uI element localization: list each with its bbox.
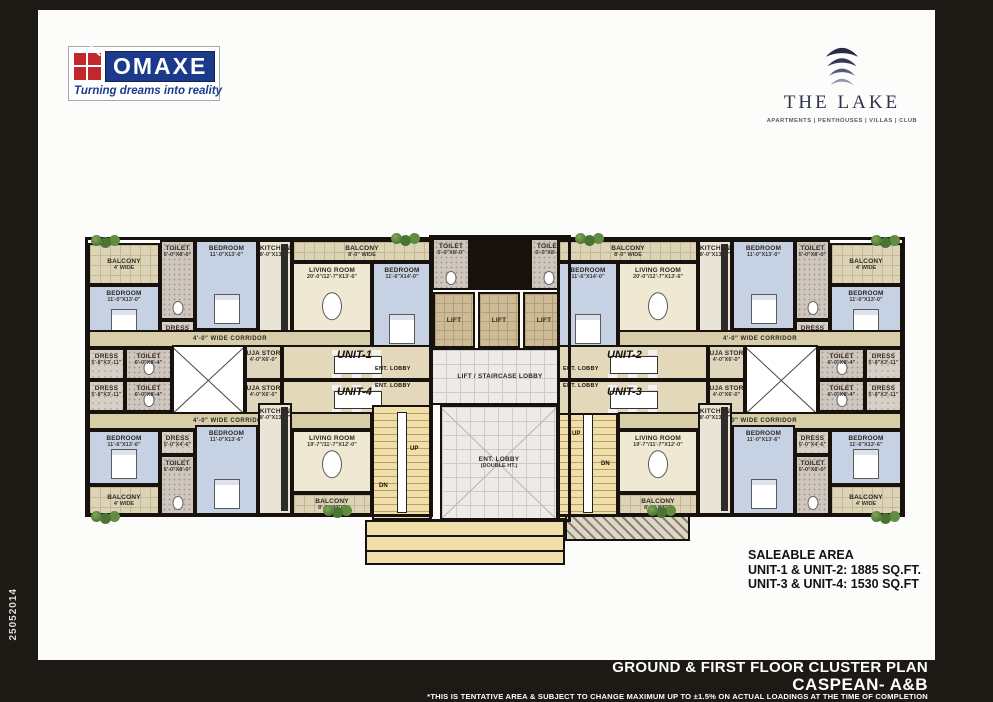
lake-building-icon: [820, 43, 864, 91]
saleable-area-note: SALEABLE AREA UNIT-1 & UNIT-2: 1885 SQ.F…: [748, 548, 921, 592]
stair-dn-left: DN: [379, 483, 388, 489]
dress-mid-left-b: DRESS5'-8"X3'-11": [88, 380, 125, 412]
living-room-u2-dimension: 20'-0"/12'-7"X13'-6": [633, 274, 683, 280]
toilet-mid-left-a-label: TOILET: [136, 353, 160, 360]
toilet-mid-left-a: TOILET6'-0"X8'-4": [125, 348, 172, 380]
page-frame: 25052014 OMAXE Turning dreams into reali…: [0, 0, 993, 702]
dress-mid-left-b-dimension: 5'-8"X3'-11": [91, 392, 121, 398]
puja-store-u1-label: PUJA STORE: [245, 350, 282, 357]
kitchen-u3-dimension: 8'-0"X13'-0": [700, 415, 730, 421]
the-lake-logo: THE LAKE APARTMENTS | PENTHOUSES | VILLA…: [764, 43, 920, 124]
puja-store-u1: PUJA STORE4'-0"X6'-0": [245, 345, 282, 380]
corridor-u3-label: 4'-0" WIDE CORRIDOR: [723, 418, 797, 425]
planter-6: [323, 505, 334, 516]
kitchen-u3: KITCHEN8'-0"X13'-0": [698, 403, 732, 515]
balcony-top-right-label: BALCONY: [849, 258, 883, 265]
kitchen-u4-label: KITCHEN: [260, 408, 290, 415]
living-room-u3-label: LIVING ROOM: [635, 435, 681, 442]
shaft-right: [745, 345, 818, 415]
toilet-mid-right-a-label: TOILET: [829, 353, 853, 360]
balcony-top-left-label: BALCONY: [107, 258, 141, 265]
bedroom-u2-mid: BEDROOM11'-0"X13'-0": [732, 240, 795, 330]
dress-u3-label: DRESS: [801, 435, 824, 442]
ent-lobby-u4: ENT. LOBBY: [375, 383, 411, 389]
dress-mid-left-a-label: DRESS: [95, 353, 118, 360]
toilet-u1: TOILET5'-0"X8'-0": [160, 240, 195, 320]
bedroom-u2-mid-dimension: 11'-0"X13'-0": [747, 252, 780, 258]
puja-store-u3-label: PUJA STORE: [708, 385, 745, 392]
planter-7: [647, 505, 658, 516]
bedroom-u4-mid: BEDROOM11'-0"X13'-6": [195, 425, 258, 515]
toilet-u1-dimension: 5'-0"X8'-0": [164, 252, 191, 258]
living-room-u3-dimension: 19'-7"/11'-7"X12'-0": [633, 442, 683, 448]
puja-store-u4-label: PUJA STORE: [245, 385, 282, 392]
entrance-steps: [365, 520, 565, 565]
bedroom-u4-mid-label: BEDROOM: [209, 430, 244, 437]
omaxe-wordmark: OMAXE: [105, 51, 215, 82]
bedroom-u3-mid-dimension: 11'-0"X13'-6": [747, 437, 780, 443]
balcony-u2-living-label: BALCONY: [611, 245, 645, 252]
toilet-u4-dimension: 5'-0"X8'-0": [164, 467, 191, 473]
kitchen-u3-label: KITCHEN: [700, 408, 730, 415]
kitchen-u2-label: KITCHEN: [700, 245, 730, 252]
balcony-u1-living-dimension: 8'-0" WIDE: [348, 252, 376, 258]
ent-lobby-u3: ENT. LOBBY: [563, 383, 599, 389]
puja-store-u2-dimension: 4'-0"X6'-0": [713, 357, 740, 363]
ent-lobby-u2: ENT. LOBBY: [563, 366, 599, 372]
bedroom-u2-right-label: BEDROOM: [848, 290, 883, 297]
stair-dn-right: DN: [601, 461, 610, 467]
omaxe-brand-icon: [74, 53, 101, 80]
lake-categories: APARTMENTS | PENTHOUSES | VILLAS | CLUB: [764, 118, 920, 124]
balcony-top-right-dimension: 4' WIDE: [856, 265, 876, 271]
balcony-bottom-left: BALCONY4' WIDE: [88, 485, 160, 515]
entrance-lobby-double-height-label: ENT. LOBBY: [479, 456, 520, 463]
omaxe-logo-row: OMAXE: [74, 51, 214, 82]
balcony-bottom-right: BALCONY4' WIDE: [830, 485, 902, 515]
kitchen-u4-dimension: 8'-0"X13'-0": [260, 415, 290, 421]
dress-mid-left-a: DRESS5'-8"X3'-11": [88, 348, 125, 380]
toilet-mid-left-a-dimension: 6'-0"X8'-4": [135, 360, 162, 366]
bedroom-u1-mid-label: BEDROOM: [209, 245, 244, 252]
toilet-u2: TOILET5'-0"X8'-0": [795, 240, 830, 320]
lift-1: LIFT: [433, 292, 475, 348]
balcony-top-left: BALCONY4' WIDE: [88, 243, 160, 285]
dress-mid-right-b: DRESS5'-8"X3'-11": [865, 380, 902, 412]
living-room-u4-label: LIVING ROOM: [309, 435, 355, 442]
dress-mid-right-a-label: DRESS: [872, 353, 895, 360]
bedroom-u2-mid-label: BEDROOM: [746, 245, 781, 252]
toilet-u2-dimension: 5'-0"X8'-0": [799, 252, 826, 258]
dress-u4-label: DRESS: [166, 435, 189, 442]
center-duct: [470, 238, 530, 290]
dress-mid-right-b-dimension: 5'-8"X3'-11": [868, 392, 898, 398]
dress-mid-left-a-dimension: 5'-8"X3'-11": [91, 360, 121, 366]
living-room-u1-label: LIVING ROOM: [309, 267, 355, 274]
living-room-u1-dimension: 20'-0"/12'-7"X13'-6": [307, 274, 357, 280]
planter-8: [871, 511, 882, 522]
ramp-hatch: [565, 515, 690, 541]
plan-title: GROUND & FIRST FLOOR CLUSTER PLAN: [612, 659, 928, 676]
dress-u4-dimension: 5'-0"X4'-6": [164, 442, 191, 448]
corridor-u1-label: 4'-0" WIDE CORRIDOR: [193, 336, 267, 343]
dress-u3: DRESS5'-0"X4'-6": [795, 430, 830, 455]
balcony-bottom-right-label: BALCONY: [849, 494, 883, 501]
toilet-u3: TOILET5'-0"X8'-0": [795, 455, 830, 515]
bedroom-u2-center-label: BEDROOM: [570, 267, 605, 274]
unit-1-label: UNIT-1: [337, 349, 372, 361]
bedroom-u4-left-dimension: 11'-6"X13'-6": [107, 442, 140, 448]
toilet-u2-label: TOILET: [800, 245, 824, 252]
print-date-code: 25052014: [8, 588, 19, 641]
planter-5: [91, 511, 102, 522]
omaxe-tagline: Turning dreams into reality: [74, 85, 214, 97]
living-room-u3: LIVING ROOM19'-7"/11'-7"X12'-0": [618, 430, 698, 493]
bedroom-u4-left-label: BEDROOM: [106, 435, 141, 442]
corridor-u4-label: 4'-0" WIDE CORRIDOR: [193, 418, 267, 425]
toilet-u4-label: TOILET: [165, 460, 189, 467]
bedroom-u1-mid-dimension: 11'-0"X13'-0": [210, 252, 243, 258]
toilet-u1-label: TOILET: [165, 245, 189, 252]
balcony-u3-living-label: BALCONY: [641, 498, 675, 505]
balcony-u1-living-label: BALCONY: [345, 245, 379, 252]
ent-lobby-u1: ENT. LOBBY: [375, 366, 411, 372]
toilet-mid-right-b: TOILET6'-0"X8'-4": [818, 380, 865, 412]
corridor-u2-label: 4'-0" WIDE CORRIDOR: [723, 336, 797, 343]
kitchen-u4: KITCHEN8'-0"X13'-0": [258, 403, 292, 515]
lift-staircase-lobby: LIFT / STAIRCASE LOBBY: [430, 348, 570, 405]
bedroom-u1-center: BEDROOM11'-6"X14'-0": [372, 262, 432, 350]
toilet-center-left: TOILET5'-0"X8'-0": [432, 238, 470, 290]
saleable-unit-3-4: UNIT-3 & UNIT-4: 1530 SQ.FT: [748, 577, 921, 592]
drawing-sheet: OMAXE Turning dreams into reality THE LA…: [38, 10, 935, 660]
puja-store-u2: PUJA STORE4'-0"X6'-0": [708, 345, 745, 380]
entrance-lobby-double-height: ENT. LOBBY(DOUBLE HT.): [440, 405, 558, 520]
omaxe-icon-slash: [90, 45, 101, 56]
dress-u3-dimension: 5'-0"X4'-6": [799, 442, 826, 448]
bedroom-u4-left: BEDROOM11'-6"X13'-6": [88, 430, 160, 485]
stair-up-left: UP: [410, 446, 418, 452]
toilet-mid-left-b: TOILET6'-0"X8'-4": [125, 380, 172, 412]
lift-3-label: LIFT: [537, 317, 552, 324]
lake-wordmark: THE LAKE: [764, 92, 920, 114]
bedroom-u1-center-label: BEDROOM: [384, 267, 419, 274]
omaxe-logo: OMAXE Turning dreams into reality: [68, 46, 220, 101]
bedroom-u3-mid-label: BEDROOM: [746, 430, 781, 437]
dress-mid-left-b-label: DRESS: [95, 385, 118, 392]
lift-1-label: LIFT: [447, 317, 462, 324]
toilet-mid-right-a-dimension: 6'-0"X8'-4": [828, 360, 855, 366]
balcony-u4-living-label: BALCONY: [315, 498, 349, 505]
bedroom-u3-mid: BEDROOM11'-0"X13'-6": [732, 425, 795, 515]
saleable-title: SALEABLE AREA: [748, 548, 921, 563]
kitchen-u2-dimension: 8'-0"X13'-0": [700, 252, 730, 258]
bedroom-u1-left-dimension: 11'-0"X13'-0": [107, 297, 140, 303]
lift-2: LIFT: [478, 292, 520, 348]
bedroom-u4-mid-dimension: 11'-0"X13'-6": [210, 437, 243, 443]
unit-2-label: UNIT-2: [607, 349, 642, 361]
living-room-u4-dimension: 19'-7"/11'-7"X12'-0": [307, 442, 357, 448]
balcony-u1-living: BALCONY8'-0" WIDE: [292, 240, 432, 262]
toilet-mid-left-b-dimension: 6'-0"X8'-4": [135, 392, 162, 398]
lift-2-label: LIFT: [492, 317, 507, 324]
entrance-lobby-double-height-dimension: (DOUBLE HT.): [481, 463, 518, 469]
bedroom-u1-mid: BEDROOM11'-0"X13'-0": [195, 240, 258, 330]
balcony-u2-living-dimension: 8'-0" WIDE: [614, 252, 642, 258]
planter-1: [91, 235, 102, 246]
toilet-u3-dimension: 5'-0"X8'-0": [799, 467, 826, 473]
balcony-top-left-dimension: 4' WIDE: [114, 265, 134, 271]
toilet-center-left-label: TOILET: [439, 243, 463, 250]
toilet-u3-label: TOILET: [800, 460, 824, 467]
floor-plan: BALCONY4' WIDEBEDROOM11'-0"X13'-0"TOILET…: [85, 233, 905, 568]
toilet-mid-right-a: TOILET6'-0"X8'-4": [818, 348, 865, 380]
dress-mid-right-a-dimension: 5'-8"X3'-11": [868, 360, 898, 366]
bedroom-u1-center-dimension: 11'-6"X14'-0": [385, 274, 418, 280]
plan-disclaimer: *THIS IS TENTATIVE AREA & SUBJECT TO CHA…: [427, 692, 928, 701]
planter-3: [575, 233, 586, 244]
bedroom-u3-right: BEDROOM11'-6"X13'-6": [830, 430, 902, 485]
bedroom-u2-center: BEDROOM11'-6"X14'-0": [558, 262, 618, 350]
stair-up-right: UP: [572, 431, 580, 437]
kitchen-u1-dimension: 8'-0"X13'-0": [260, 252, 290, 258]
shaft-left: [172, 345, 245, 415]
staircase-left: [372, 405, 432, 520]
balcony-bottom-left-label: BALCONY: [107, 494, 141, 501]
toilet-mid-right-b-dimension: 6'-0"X8'-4": [828, 392, 855, 398]
puja-store-u2-label: PUJA STORE: [708, 350, 745, 357]
unit-3-label: UNIT-3: [607, 386, 642, 398]
bedroom-u1-left-label: BEDROOM: [106, 290, 141, 297]
planter-4: [871, 235, 882, 246]
balcony-bottom-right-dimension: 4' WIDE: [856, 501, 876, 507]
lift-staircase-lobby-label: LIFT / STAIRCASE LOBBY: [457, 373, 542, 380]
dress-u4: DRESS5'-0"X4'-6": [160, 430, 195, 455]
balcony-u3-living: BALCONY8'-0" WIDE: [618, 493, 698, 515]
balcony-top-right: BALCONY4' WIDE: [830, 243, 902, 285]
saleable-unit-1-2: UNIT-1 & UNIT-2: 1885 SQ.FT.: [748, 563, 921, 578]
dress-mid-right-a: DRESS5'-8"X3'-11": [865, 348, 902, 380]
kitchen-u1-label: KITCHEN: [260, 245, 290, 252]
toilet-mid-right-b-label: TOILET: [829, 385, 853, 392]
toilet-mid-left-b-label: TOILET: [136, 385, 160, 392]
toilet-center-left-dimension: 5'-0"X8'-0": [437, 250, 464, 256]
bedroom-u3-right-dimension: 11'-6"X13'-6": [849, 442, 882, 448]
bedroom-u2-right-dimension: 11'-0"X13'-0": [849, 297, 882, 303]
unit-4-label: UNIT-4: [337, 386, 372, 398]
toilet-u4: TOILET5'-0"X8'-0": [160, 455, 195, 515]
living-room-u2-label: LIVING ROOM: [635, 267, 681, 274]
puja-store-u3-dimension: 4'-0"X6'-0": [713, 392, 740, 398]
bedroom-u3-right-label: BEDROOM: [848, 435, 883, 442]
planter-2: [391, 233, 402, 244]
dress-mid-right-b-label: DRESS: [872, 385, 895, 392]
bedroom-u2-center-dimension: 11'-6"X14'-0": [571, 274, 604, 280]
puja-store-u4-dimension: 4'-0"X6'-0": [250, 392, 277, 398]
puja-store-u1-dimension: 4'-0"X6'-0": [250, 357, 277, 363]
balcony-bottom-left-dimension: 4' WIDE: [114, 501, 134, 507]
living-room-u4: LIVING ROOM19'-7"/11'-7"X12'-0": [292, 430, 372, 493]
